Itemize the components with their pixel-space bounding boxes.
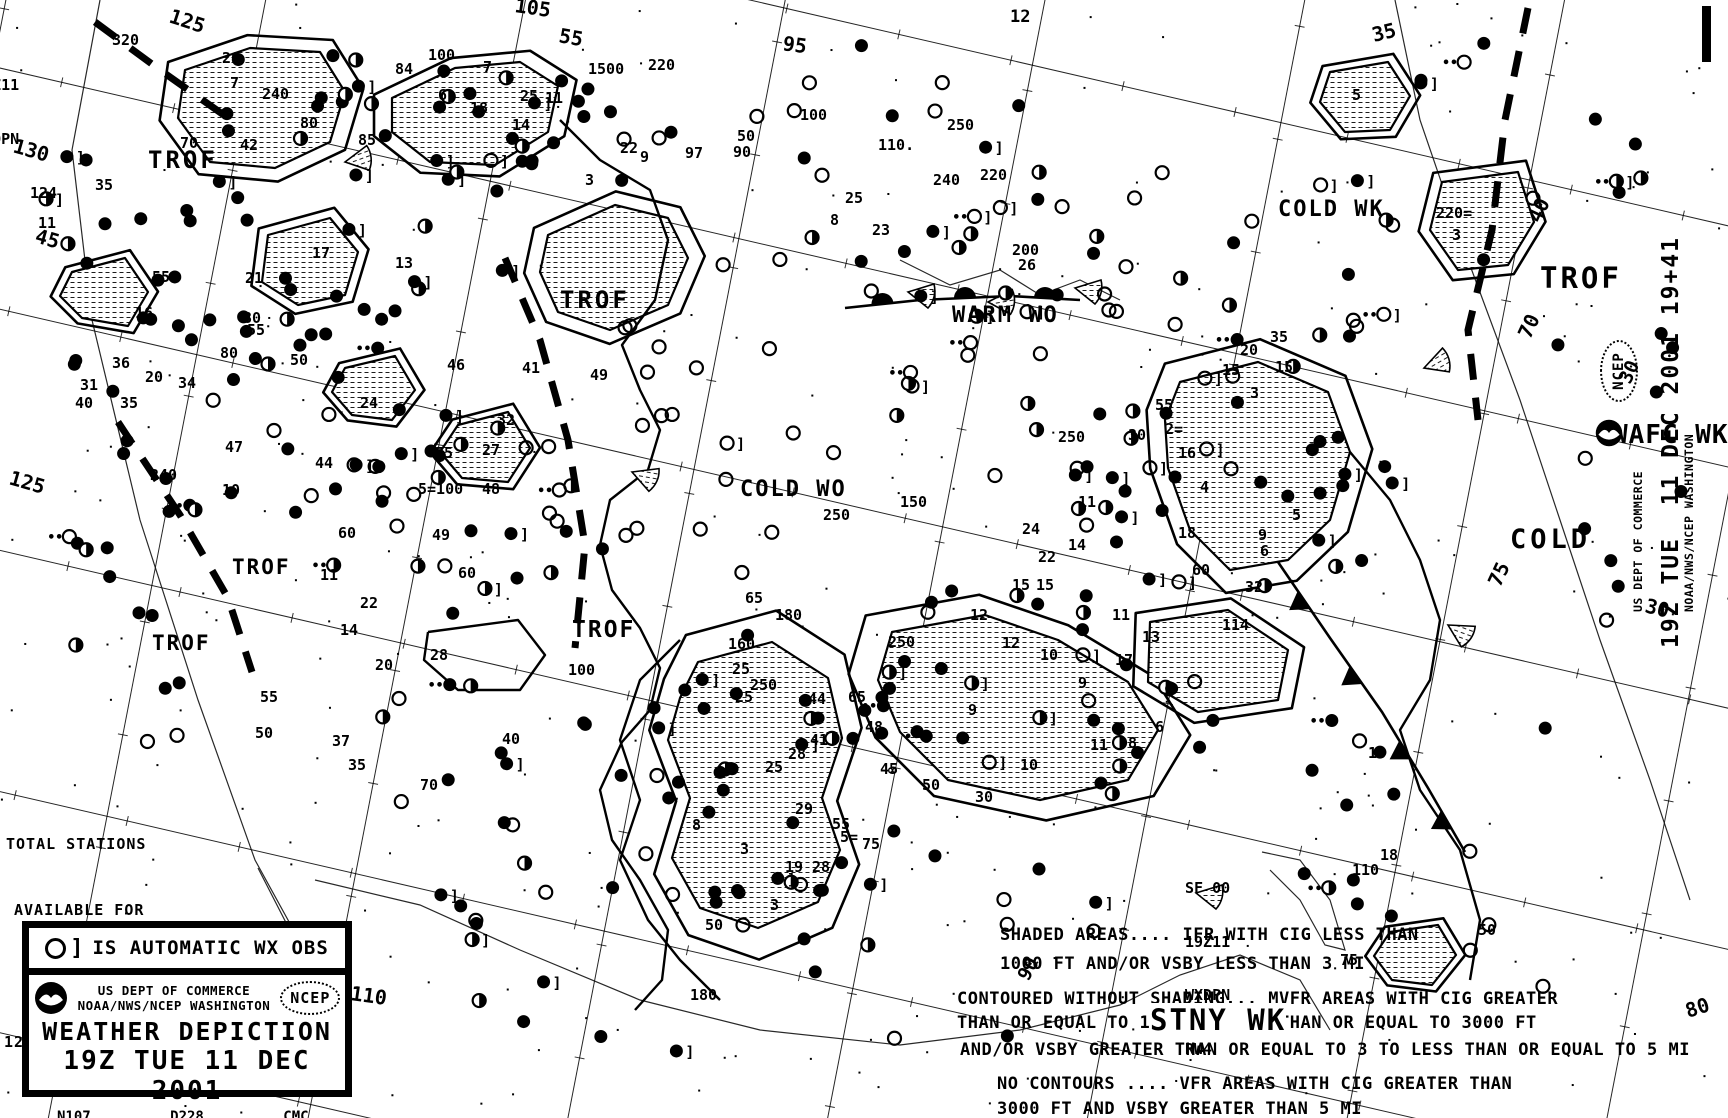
svg-text:]: ] <box>1092 647 1101 665</box>
station-value-label: 100 <box>800 106 827 124</box>
station-value-label: 28 <box>812 858 830 876</box>
stamp-line: RW4 <box>1185 1042 1230 1058</box>
wafc-wk-label: WAFC WK <box>1612 420 1728 450</box>
station-value-label: 60 <box>458 564 476 582</box>
svg-text:]: ] <box>516 756 525 774</box>
station-value-label: 22 <box>1038 548 1056 566</box>
front-label: TROF <box>148 146 218 174</box>
chart-datetime: 19Z TUE 11 DEC 2001 <box>29 1046 345 1106</box>
code-n107: N107 <box>57 1109 91 1118</box>
auto-obs-row: ] IS AUTOMATIC WX OBS <box>29 928 345 975</box>
svg-text:]: ] <box>879 876 888 894</box>
station-value-label: 180 <box>775 606 802 624</box>
station-value-label: 18 <box>1178 524 1196 542</box>
station-value-label: 10 <box>222 481 240 499</box>
graticule-label: 45 <box>33 224 63 254</box>
side-agency-line1: US DEPT OF COMMERCE <box>1632 434 1645 612</box>
station-value-label: 47 <box>225 438 243 456</box>
svg-text:••: •• <box>1594 175 1610 190</box>
svg-text:••: •• <box>1307 882 1323 897</box>
station-value-label: 11 <box>320 566 338 584</box>
agency-line2: NOAA/NWS/NCEP WASHINGTON <box>78 998 271 1013</box>
station-value-label: 8 <box>1128 734 1137 752</box>
station-value-label: 13 <box>1142 628 1160 646</box>
station-value-label: 49 <box>432 526 450 544</box>
svg-text:••: •• <box>888 366 904 381</box>
station-value-label: 180 <box>690 986 717 1004</box>
svg-text:••: •• <box>537 484 553 499</box>
station-value-label: 250 <box>888 633 915 651</box>
side-noaa-logo <box>1594 418 1624 448</box>
station-value-label: 36 <box>112 354 130 372</box>
svg-text:]: ] <box>520 526 529 544</box>
station-value-label: 25 <box>735 688 753 706</box>
station-value-label: 26 <box>1018 256 1036 274</box>
station-value-label: 240 <box>262 85 289 103</box>
station-value-label: 21 <box>245 269 263 287</box>
station-value-label: 80 <box>300 114 318 132</box>
station-value-label: 24 <box>1022 520 1040 538</box>
svg-text:••: •• <box>356 342 372 357</box>
station-value-label: 5 <box>1292 506 1301 524</box>
station-value-label: 3 <box>585 171 594 189</box>
station-value-label: 220= <box>1436 204 1472 222</box>
stamp-line: WXDPN <box>1185 988 1230 1004</box>
front-label: WARM WO <box>952 303 1059 328</box>
station-value-label: 11 <box>1078 493 1096 511</box>
station-value-label: 13 <box>395 254 413 272</box>
station-value-label: 35 <box>120 394 138 412</box>
station-value-label: 124 <box>30 184 57 202</box>
criteria-line-7: 3000 FT AND VSBY GREATER THAN 5 MI <box>997 1099 1362 1118</box>
svg-text:]: ] <box>668 720 677 738</box>
svg-text:]: ] <box>365 457 374 475</box>
station-circle-icon <box>45 938 66 959</box>
station-value-label: 240 <box>933 171 960 189</box>
svg-text:]: ] <box>1401 475 1410 493</box>
station-value-label: 110. <box>878 136 914 154</box>
station-value-label: 2= <box>1165 420 1183 438</box>
svg-text:]: ] <box>455 407 464 425</box>
svg-text:]: ] <box>998 754 1007 772</box>
station-value-label: 30 <box>975 788 993 806</box>
station-value-label: 25 <box>765 758 783 776</box>
svg-text:]: ] <box>500 152 509 170</box>
station-value-label: 70 <box>420 776 438 794</box>
stamp-line: 19Z11 <box>0 78 19 94</box>
station-value-label: 97 <box>685 144 703 162</box>
station-value-label: 80 <box>220 344 238 362</box>
station-value-label: 25 <box>845 189 863 207</box>
station-value-label: 9 <box>1078 674 1087 692</box>
station-value-label: 15 <box>1222 361 1240 379</box>
criteria-line-2: 1000 FT AND/OR VSBY LESS THAN 3 MI <box>1000 954 1365 974</box>
station-value-label: 25 <box>520 87 538 105</box>
station-value-label: 22 <box>360 594 378 612</box>
station-value-label: 16 <box>135 304 153 322</box>
station-value-label: 100 <box>568 661 595 679</box>
svg-text:]: ] <box>1430 75 1439 93</box>
station-value-label: 31 <box>80 376 98 394</box>
station-value-label: 3 <box>740 840 749 858</box>
graticule-label: 95 <box>781 31 808 58</box>
svg-text:]: ] <box>76 149 85 167</box>
graticule-label: 75 <box>1483 558 1515 590</box>
graticule-label: 55 <box>557 23 585 51</box>
station-value-label: 3 <box>1452 226 1461 244</box>
station-value-label: 17 <box>312 244 330 262</box>
stamp-line: SF 00 <box>1185 881 1230 897</box>
stamp-line: 19Z11 <box>1185 935 1230 951</box>
station-value-label: 15 <box>1275 358 1293 376</box>
station-value-label: 75 <box>862 835 880 853</box>
station-value-label: 48 <box>482 480 500 498</box>
agency-text: US DEPT OF COMMERCE NOAA/NWS/NCEP WASHIN… <box>78 983 271 1013</box>
station-value-label: 20 <box>1240 341 1258 359</box>
svg-text:]: ] <box>228 174 237 192</box>
station-value-label: 16 <box>1178 444 1196 462</box>
station-value-label: 30 <box>1128 426 1146 444</box>
front-label: TROF <box>1540 261 1622 295</box>
station-value-label: 27 <box>482 441 500 459</box>
station-value-label: 32 <box>497 411 515 429</box>
station-value-label: 10 <box>1020 756 1038 774</box>
svg-text:]: ] <box>1366 173 1375 191</box>
station-value-label: 55 <box>260 688 278 706</box>
station-value-label: 15 <box>1036 576 1054 594</box>
station-value-label: 250 <box>750 676 777 694</box>
station-value-label: 28 <box>788 745 806 763</box>
station-value-label: 14 <box>512 116 530 134</box>
station-value-label: 9 <box>968 701 977 719</box>
station-value-label: 37 <box>332 732 350 750</box>
station-value-label: 44 <box>808 690 826 708</box>
svg-text:••: •• <box>428 679 444 694</box>
graticule-label: 125 <box>166 4 208 38</box>
station-value-label: 10 <box>1040 646 1058 664</box>
svg-text:]: ] <box>365 167 374 185</box>
station-value-label: 1500 <box>588 60 624 78</box>
station-value-label: 20 <box>222 49 240 67</box>
front-label: COLD <box>1510 524 1591 555</box>
station-value-label: 18 <box>470 99 488 117</box>
svg-text:••: •• <box>904 730 920 745</box>
svg-text:]: ] <box>481 932 490 950</box>
criteria-line-6: NO CONTOURS .... VFR AREAS WITH CIG GREA… <box>997 1074 1512 1094</box>
station-value-label: 25 <box>732 660 750 678</box>
station-value-label: 84 <box>395 60 413 78</box>
note-line: TOTAL STATIONS <box>6 830 165 858</box>
svg-text:]: ] <box>1393 306 1402 324</box>
svg-text:]: ] <box>410 446 419 464</box>
front-label: COLD WO <box>740 477 847 502</box>
svg-text:]: ] <box>1131 509 1140 527</box>
criteria-line-5: AND/OR VSBY GREATER THAN OR EQUAL TO 3 T… <box>960 1040 1690 1060</box>
code-d228: D228 <box>170 1109 204 1118</box>
station-value-label: 85 <box>358 131 376 149</box>
station-value-label: 44 <box>315 454 333 472</box>
station-value-label: 50 <box>255 724 273 742</box>
graticule-label: 110 <box>349 981 388 1010</box>
station-value-label: 48 <box>865 718 883 736</box>
station-value-label: 24 <box>360 394 378 412</box>
station-value-label: 5=100 <box>418 480 463 498</box>
svg-text:]: ] <box>1330 177 1339 195</box>
svg-text:]: ] <box>1328 532 1337 550</box>
svg-text:]: ] <box>1159 460 1168 478</box>
svg-text:••: •• <box>949 337 965 352</box>
station-value-label: 250 <box>947 116 974 134</box>
svg-text:]: ] <box>1216 441 1225 459</box>
front-label: TROF <box>572 617 635 643</box>
station-value-label: 55 <box>435 444 453 462</box>
graticule-label: 35 <box>1369 18 1398 47</box>
svg-text:]: ] <box>367 78 376 96</box>
svg-text:••: •• <box>1362 308 1378 323</box>
graticule-label: 125 <box>7 466 48 499</box>
noaa-logo <box>34 981 68 1015</box>
station-value-label: 15 <box>1012 576 1030 594</box>
station-value-label: 9 <box>640 148 649 166</box>
station-value-label: 220 <box>648 56 675 74</box>
svg-text:]: ] <box>711 672 720 690</box>
svg-text:]: ] <box>1625 173 1634 191</box>
stamp-line: WXDPN <box>0 132 19 148</box>
chart-title: WEATHER DEPICTION <box>29 1017 345 1046</box>
station-value-label: 20 <box>145 368 163 386</box>
station-value-label: 19 <box>785 858 803 876</box>
station-value-label: 90 <box>733 143 751 161</box>
station-value-label: 14 <box>340 621 358 639</box>
svg-text:]: ] <box>1354 466 1363 484</box>
map-edge-bar <box>1702 6 1711 62</box>
station-value-label: 32 <box>1245 578 1263 596</box>
station-value-label: 46 <box>447 356 465 374</box>
station-value-label: 35 <box>95 176 113 194</box>
svg-text:]: ] <box>685 1043 694 1061</box>
station-value-label: 11 <box>545 89 563 107</box>
station-value-label: 4 <box>1200 478 1209 496</box>
agency-line1: US DEPT OF COMMERCE <box>78 983 271 998</box>
station-value-label: 12 <box>1002 634 1020 652</box>
station-value-label: 6 <box>1260 542 1269 560</box>
station-value-label: 114 <box>1222 616 1249 634</box>
front-label: TROF <box>152 631 211 655</box>
station-value-label: 35 <box>348 756 366 774</box>
station-value-label: 41 <box>522 359 540 377</box>
station-value-label: 250 <box>1058 428 1085 446</box>
station-value-label: 65 <box>745 589 763 607</box>
graticule-label: 12 <box>1010 7 1030 27</box>
station-value-label: 7 <box>230 74 239 92</box>
bracket-glyph: ] <box>70 936 84 961</box>
station-value-label: ∞ <box>888 761 897 779</box>
svg-text:••: •• <box>1215 334 1231 349</box>
station-value-label: 8 <box>830 211 839 229</box>
station-value-label: 50 <box>922 776 940 794</box>
svg-text:]: ] <box>736 435 745 453</box>
station-value-label: 11 <box>1090 736 1108 754</box>
svg-text:]: ] <box>995 139 1004 157</box>
station-value-label: 250 <box>823 506 850 524</box>
station-value-label: 23 <box>872 221 890 239</box>
station-value-label: 40 <box>502 730 520 748</box>
svg-text:]: ] <box>981 675 990 693</box>
station-value-label: 60 <box>1192 561 1210 579</box>
station-value-label: 14 <box>1068 536 1086 554</box>
station-value-label: 17 <box>1115 651 1133 669</box>
svg-text:]: ] <box>358 221 367 239</box>
svg-text:]: ] <box>423 274 432 292</box>
svg-text:]: ] <box>942 223 951 241</box>
station-value-label: 55 <box>247 321 265 339</box>
station-value-label: 5= <box>840 828 858 846</box>
legend-box: ] IS AUTOMATIC WX OBS US DEPT OF COMMERC… <box>22 921 352 1097</box>
station-value-label: 5 <box>1352 86 1361 104</box>
station-value-label: 20 <box>375 656 393 674</box>
station-value-label: 22 <box>620 139 638 157</box>
front-label: COLD WK <box>1278 197 1385 222</box>
graticule-label: 80 <box>1682 992 1712 1022</box>
ncep-logo: NCEP <box>280 981 340 1015</box>
station-value-label: 29 <box>795 800 813 818</box>
station-value-label: 100 <box>428 46 455 64</box>
svg-text:]: ] <box>1049 710 1058 728</box>
weather-depiction-chart: ]]]]]]]]]]]]••••]]]]]••]]]]]••]]]••]]••]… <box>0 0 1728 1118</box>
svg-text:]: ] <box>983 208 992 226</box>
svg-text:]: ] <box>1009 200 1018 218</box>
graticule-label: 105 <box>513 0 552 22</box>
svg-text:]: ] <box>921 378 930 396</box>
station-value-label: 6 <box>438 86 447 104</box>
front-label: TROF <box>232 555 291 579</box>
station-value-label: 41 <box>810 731 828 749</box>
station-value-label: 55 <box>1155 396 1173 414</box>
station-value-label: 12 <box>970 606 988 624</box>
station-value-label: 60 <box>338 524 356 542</box>
side-agency-rotated: US DEPT OF COMMERCE NOAA/NWS/NCEP WASHIN… <box>1594 434 1728 612</box>
svg-text:]: ] <box>1105 894 1114 912</box>
graticule-label: 70 <box>1513 310 1545 342</box>
station-value-label: 50 <box>705 916 723 934</box>
station-value-label: 320 <box>112 31 139 49</box>
station-value-label: 34 <box>178 374 196 392</box>
svg-text:••: •• <box>1442 56 1458 71</box>
station-value-label: 35 <box>1270 328 1288 346</box>
station-value-label: 18 <box>1380 846 1398 864</box>
station-value-label: 40 <box>75 394 93 412</box>
code-cmc: CMC. <box>283 1109 317 1118</box>
station-value-label: 7 <box>483 58 492 76</box>
station-value-label: 150 <box>900 493 927 511</box>
agency-row: US DEPT OF COMMERCE NOAA/NWS/NCEP WASHIN… <box>29 981 345 1015</box>
station-value-label: 6 <box>1155 718 1164 736</box>
svg-text:]: ] <box>494 580 503 598</box>
station-value-label: 3 <box>770 896 779 914</box>
station-value-label: 65 <box>848 688 866 706</box>
station-value-label: 55 <box>152 268 170 286</box>
svg-text:••: •• <box>47 531 63 546</box>
station-value-label: 50 <box>290 351 308 369</box>
station-value-label: 110 <box>1352 861 1379 879</box>
svg-text:••: •• <box>952 210 968 225</box>
station-value-label: 160 <box>728 635 755 653</box>
station-value-label: 240 <box>150 466 177 484</box>
station-value-label: 220 <box>980 166 1007 184</box>
svg-text:]: ] <box>930 288 939 306</box>
station-value-label: 11 <box>1112 606 1130 624</box>
station-value-label: 8 <box>692 816 701 834</box>
station-value-label: 49 <box>590 366 608 384</box>
front-label: TROF <box>560 286 630 314</box>
side-ncep-logo: NCEP <box>1600 340 1638 402</box>
auto-obs-label: IS AUTOMATIC WX OBS <box>92 937 328 959</box>
station-value-label: 18 <box>1368 744 1386 762</box>
svg-text:••: •• <box>1310 714 1326 729</box>
station-value-label: 28 <box>430 646 448 664</box>
side-agency-line2: NOAA/NWS/NCEP WASHINGTON <box>1683 434 1696 612</box>
station-value-label: 3 <box>1250 384 1259 402</box>
svg-text:]: ] <box>553 974 562 992</box>
svg-text:]: ] <box>1158 571 1167 589</box>
note-line: AVAILABLE FOR <box>14 896 165 924</box>
stamp-topleft: 19Z11 WXDPN <box>0 40 19 185</box>
chart-codes: N107 D228 CMC. <box>29 1109 345 1118</box>
station-value-label: 42 <box>240 136 258 154</box>
station-value-label: 50 <box>1478 921 1496 939</box>
svg-text:]: ] <box>511 262 520 280</box>
stamp-sf: SF 00 19Z11 WXDPN RW4 <box>1185 843 1230 1095</box>
